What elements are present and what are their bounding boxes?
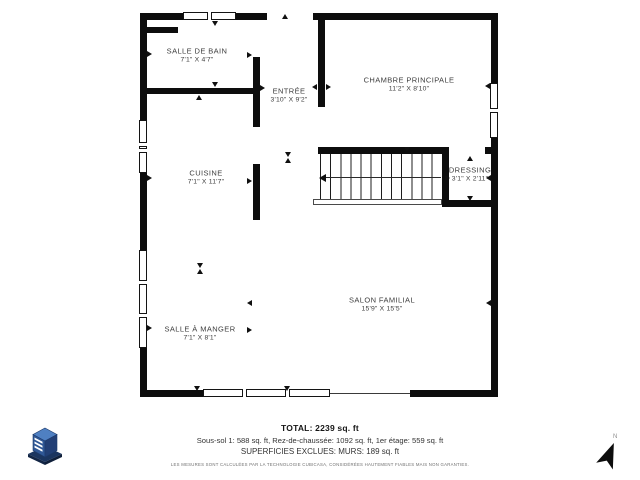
window-divider xyxy=(242,389,247,397)
cubicasa-cube-logo-icon xyxy=(25,426,65,468)
staircase-direction-line xyxy=(323,177,441,178)
opening-marker xyxy=(212,82,218,87)
opening-marker xyxy=(282,14,288,19)
window xyxy=(183,12,236,20)
room-label-entree: ENTRÉE 3'10" X 9'2" xyxy=(270,87,307,104)
window-divider xyxy=(139,148,147,153)
room-label-chambre-principale: CHAMBRE PRINCIPALE 11'2" X 8'10" xyxy=(364,76,455,93)
wall-segment xyxy=(147,27,178,33)
window-divider xyxy=(139,313,147,318)
wall-segment xyxy=(253,57,260,127)
room-label-salle-a-manger: SALLE À MANGER 7'1" X 8'1" xyxy=(164,325,235,342)
opening-marker xyxy=(284,386,290,391)
wall-segment xyxy=(442,200,498,207)
opening-edge-line xyxy=(330,393,410,394)
room-dimensions: 7'1" X 8'1" xyxy=(164,335,235,342)
floor-areas-text: Sous-sol 1: 588 sq. ft, Rez-de-chaussée:… xyxy=(0,436,640,445)
window xyxy=(139,250,147,348)
opening-marker xyxy=(486,300,491,306)
window xyxy=(203,389,330,397)
opening-marker-top xyxy=(197,263,203,268)
wall-segment xyxy=(236,13,267,20)
wall-segment xyxy=(318,147,445,154)
opening-marker xyxy=(404,147,410,152)
wall-segment xyxy=(491,13,498,83)
room-label-dressing: DRESSING 3'1" X 2'11" xyxy=(449,166,491,183)
staircase-landing xyxy=(313,199,442,205)
opening-marker xyxy=(247,178,252,184)
opening-marker xyxy=(147,51,152,57)
room-dimensions: 15'9" X 15'5" xyxy=(349,306,415,313)
wall-segment xyxy=(147,88,260,94)
room-dimensions: 11'2" X 8'10" xyxy=(364,86,455,93)
opening-marker-bottom xyxy=(285,158,291,163)
opening-marker xyxy=(467,196,473,201)
room-dimensions: 7'1" X 4'7" xyxy=(167,57,228,64)
room-name: DRESSING xyxy=(449,166,491,175)
north-label: N xyxy=(613,434,617,440)
room-label-salon-familial: SALON FAMILIAL 15'9" X 15'5" xyxy=(349,296,415,313)
opening-marker xyxy=(247,300,252,306)
wall-segment xyxy=(140,173,147,250)
wall-segment xyxy=(491,138,498,397)
opening-marker xyxy=(485,83,490,89)
window xyxy=(139,120,147,173)
wall-segment xyxy=(140,390,203,397)
room-label-cuisine: CUISINE 7'1" X 11'7" xyxy=(188,169,225,186)
staircase-direction-arrow xyxy=(319,174,326,182)
room-dimensions: 3'10" X 9'2" xyxy=(270,97,307,104)
room-name: SALLE À MANGER xyxy=(164,325,235,334)
room-name: CHAMBRE PRINCIPALE xyxy=(364,76,455,85)
disclaimer-text: LES MESURES SONT CALCULÉES PAR LA TECHNO… xyxy=(0,462,640,467)
opening-marker xyxy=(260,85,265,91)
opening-marker xyxy=(467,156,473,161)
opening-marker xyxy=(247,327,252,333)
opening-marker xyxy=(147,175,152,181)
opening-marker xyxy=(197,263,203,274)
window-divider xyxy=(139,142,147,147)
opening-marker xyxy=(194,386,200,391)
compass: N xyxy=(594,433,628,473)
opening-marker-bottom xyxy=(197,269,203,274)
wall-segment xyxy=(318,13,325,107)
window-divider xyxy=(490,108,498,113)
total-area-text: TOTAL: 2239 sq. ft xyxy=(0,423,640,433)
window xyxy=(490,83,498,138)
room-dimensions: 3'1" X 2'11" xyxy=(449,176,491,183)
opening-marker xyxy=(212,21,218,26)
opening-marker xyxy=(147,325,152,331)
opening-marker xyxy=(196,95,202,100)
opening-marker xyxy=(326,84,331,90)
room-name: SALON FAMILIAL xyxy=(349,296,415,305)
room-name: CUISINE xyxy=(188,169,225,178)
room-dimensions: 7'1" X 11'7" xyxy=(188,179,225,186)
window-divider xyxy=(207,12,212,20)
wall-segment xyxy=(313,13,498,20)
floor-plan-page: SALLE DE BAIN 7'1" X 4'7" ENTRÉE 3'10" X… xyxy=(0,0,640,480)
excluded-areas-text: SUPERFICIES EXCLUES: MURS: 189 sq. ft xyxy=(0,447,640,456)
wall-segment xyxy=(485,147,498,154)
opening-marker xyxy=(312,84,317,90)
opening-marker-top xyxy=(285,152,291,157)
wall-segment xyxy=(410,390,498,397)
opening-marker xyxy=(285,152,291,163)
opening-marker xyxy=(247,52,252,58)
room-name: SALLE DE BAIN xyxy=(167,47,228,56)
north-arrow-icon xyxy=(592,437,627,473)
window-divider xyxy=(139,280,147,285)
wall-segment xyxy=(140,13,147,120)
wall-segment xyxy=(253,164,260,220)
area-summary: TOTAL: 2239 sq. ft Sous-sol 1: 588 sq. f… xyxy=(0,423,640,467)
room-label-salle-de-bain: SALLE DE BAIN 7'1" X 4'7" xyxy=(167,47,228,64)
room-name: ENTRÉE xyxy=(270,87,307,96)
